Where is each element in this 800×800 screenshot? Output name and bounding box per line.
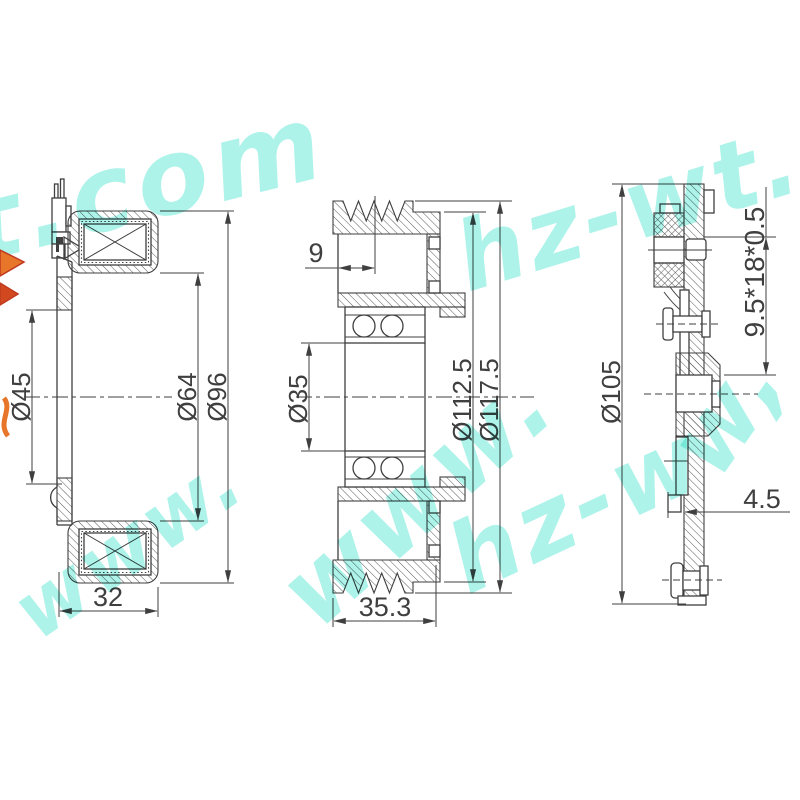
coil-mounting-plate bbox=[51, 256, 72, 525]
watermark-text: www. bbox=[0, 433, 261, 658]
dim-label-bearing-bore: Ø35 bbox=[283, 374, 313, 423]
logo-wing-icon bbox=[0, 283, 18, 305]
damper-rubber bbox=[654, 263, 684, 287]
logo-stroke bbox=[4, 398, 8, 436]
dim-label-groove-offset: 9 bbox=[308, 238, 323, 268]
dim-label-plate-thickness: 4.5 bbox=[743, 484, 781, 514]
dim-label-coil-bore: Ø45 bbox=[6, 372, 36, 421]
plate-hatch-upper bbox=[57, 277, 72, 310]
bearing-top bbox=[345, 307, 425, 343]
snap-ring-groove bbox=[429, 237, 440, 249]
plate-pin-bump bbox=[51, 487, 57, 508]
rivet-shaft bbox=[673, 316, 702, 332]
snap-ring-groove bbox=[429, 281, 440, 293]
watermark-text: t.com bbox=[0, 80, 339, 286]
dim-label-plate-outer: Ø105 bbox=[596, 360, 626, 424]
clutch-pulley-drawing: Ø45 Ø64 Ø96 32 bbox=[0, 0, 800, 800]
dim-label-coil-outer: Ø96 bbox=[202, 372, 232, 421]
dim-label-coil-inner: Ø64 bbox=[172, 372, 202, 421]
engineering-drawing-page: Ø45 Ø64 Ø96 32 bbox=[0, 0, 800, 800]
pulley-rim-top bbox=[333, 201, 440, 234]
